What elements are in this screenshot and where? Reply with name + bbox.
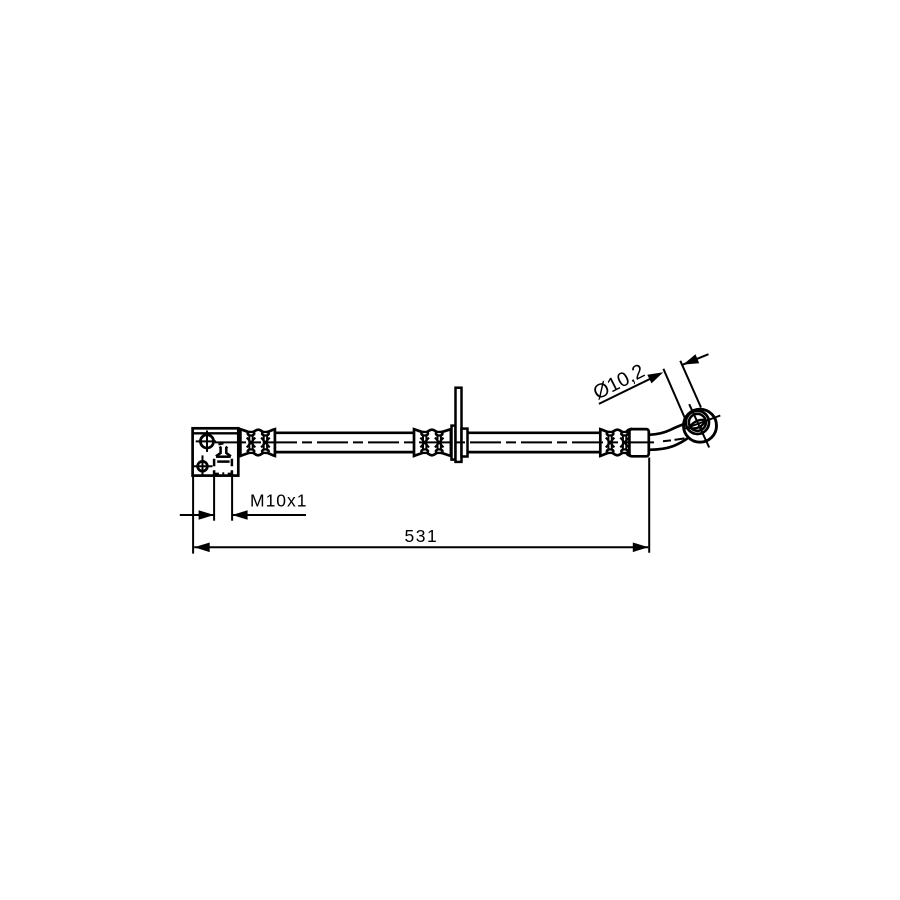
- svg-text:531: 531: [405, 526, 439, 546]
- svg-text:Ø10,2: Ø10,2: [590, 360, 649, 404]
- svg-text:M10x1: M10x1: [250, 491, 308, 511]
